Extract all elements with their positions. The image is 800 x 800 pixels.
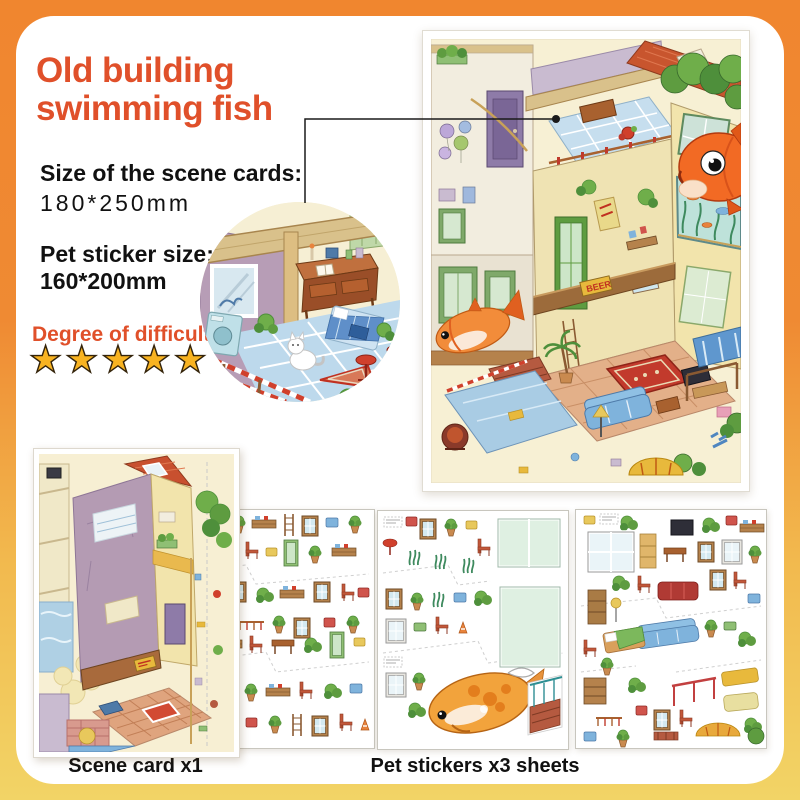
poster-illustration: BEER bbox=[431, 39, 741, 483]
sticker-sheet-3 bbox=[575, 509, 767, 749]
scene-size-value: 180*250mm bbox=[40, 190, 191, 217]
product-infographic: Old building swimming fish Size of the s… bbox=[0, 0, 800, 800]
poster-frame: BEER bbox=[422, 30, 750, 492]
sticker-sheet-2-illustration bbox=[378, 511, 568, 749]
scene-card-image bbox=[33, 448, 240, 758]
product-title-line2: swimming fish bbox=[36, 90, 273, 128]
star-rating-icons: ★★★★★ bbox=[29, 338, 210, 381]
magnifier-detail-circle bbox=[200, 202, 400, 402]
scene-size-label: Size of the scene cards: bbox=[40, 160, 302, 187]
sticker-sheet-3-illustration bbox=[576, 510, 766, 748]
pet-stickers-caption: Pet stickers x3 sheets bbox=[180, 755, 770, 778]
pet-size-label: Pet sticker size: bbox=[40, 241, 214, 268]
pet-size-value: 160*200mm bbox=[40, 268, 167, 295]
sticker-sheet-2 bbox=[377, 510, 569, 750]
product-title: Old building swimming fish bbox=[36, 52, 273, 128]
scene-card-illustration bbox=[39, 454, 234, 752]
product-title-line1: Old building bbox=[36, 52, 273, 90]
room-detail-illustration bbox=[200, 202, 400, 402]
